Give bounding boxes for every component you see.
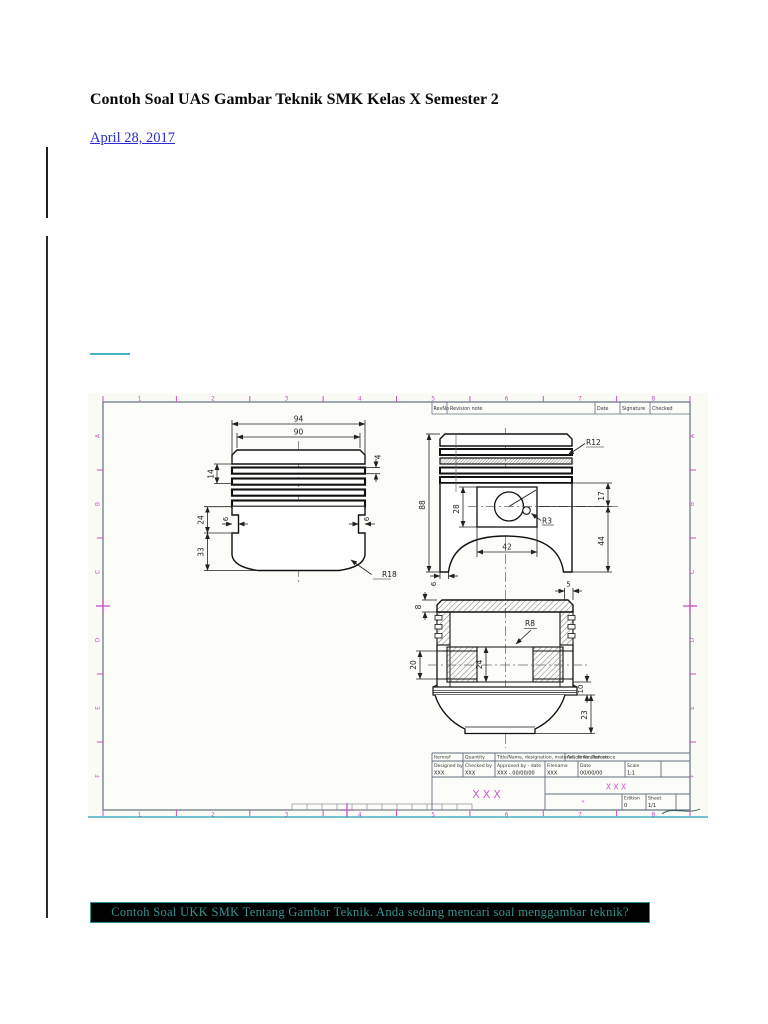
svg-text:8: 8 — [651, 812, 655, 819]
dim-6-leg: 6 — [430, 581, 438, 586]
svg-text:5: 5 — [431, 396, 435, 403]
svg-text:B: B — [689, 502, 696, 506]
svg-text:7: 7 — [578, 812, 582, 819]
dim-20: 20 — [409, 660, 418, 670]
tb-star: * — [582, 800, 585, 807]
svg-text:F: F — [689, 774, 696, 778]
front-view — [232, 441, 365, 583]
divider-line-short — [46, 147, 48, 218]
revision-checked-label: Checked — [652, 406, 673, 412]
tb-sheet-value: 1/1 — [648, 803, 656, 809]
dim-5: 5 — [566, 581, 570, 589]
tb-scale-value: 1:1 — [627, 771, 635, 777]
dim-r12: R12 — [586, 438, 601, 447]
tb-designed-value: XXX — [434, 771, 445, 777]
footer-link-bar[interactable]: Contoh Soal UKK SMK Tentang Gambar Tekni… — [90, 902, 650, 923]
tb-drawing-title-placeholder: XXX — [472, 788, 504, 801]
tb-approved-label: Approved by - date — [497, 763, 541, 769]
svg-text:1: 1 — [138, 812, 142, 819]
svg-text:5: 5 — [431, 812, 435, 819]
dim-r18: R18 — [382, 570, 397, 579]
revision-date-label: Date — [597, 406, 609, 412]
svg-text:7: 7 — [578, 396, 582, 403]
dim-42: 42 — [502, 543, 512, 552]
tb-article-placeholder: XXX — [606, 783, 628, 792]
revision-signature-label: Signature — [622, 406, 645, 412]
dim-6-right: 6 — [363, 516, 371, 521]
svg-text:1: 1 — [138, 396, 142, 403]
tb-date-value: 00/00/00 — [580, 771, 602, 777]
svg-text:F: F — [95, 774, 102, 778]
tb-filename-value: XXX — [547, 771, 558, 777]
svg-text:4: 4 — [358, 396, 362, 403]
svg-text:2: 2 — [211, 812, 215, 819]
dim-8: 8 — [414, 604, 423, 609]
tb-checked-label: Checked by — [465, 763, 492, 769]
tb-designed-label: Designed by — [434, 763, 463, 769]
tb-header-quantity: Quantity — [465, 755, 485, 761]
dim-88: 88 — [418, 500, 427, 510]
dim-23: 23 — [580, 710, 589, 720]
teal-rule-short — [90, 353, 130, 355]
tb-date-label: Date — [580, 763, 591, 769]
tb-filename-label: Filename — [547, 763, 568, 769]
tb-sheet-label: Sheet — [648, 796, 661, 802]
svg-text:E: E — [95, 706, 102, 710]
svg-text:2: 2 — [211, 396, 215, 403]
svg-text:6: 6 — [505, 396, 509, 403]
date-link[interactable]: April 28, 2017 — [90, 130, 175, 147]
svg-text:3: 3 — [284, 812, 288, 819]
svg-text:4: 4 — [358, 812, 362, 819]
dim-r8: R8 — [525, 619, 535, 628]
tb-checked-value: XXX — [465, 771, 476, 777]
technical-drawing: 1 2 3 4 5 6 7 8 1 2 3 4 5 6 7 8 A B C D … — [88, 393, 708, 821]
dim-6-left: 6 — [222, 516, 230, 521]
dim-24: 24 — [475, 660, 484, 670]
tb-approved-value: XXX - 00/00/00 — [497, 771, 535, 777]
tb-scale-label: Scale — [627, 763, 640, 769]
dim-94: 94 — [294, 415, 304, 424]
dim-90: 90 — [294, 428, 304, 437]
dim-10: 10 — [577, 685, 585, 694]
piston-drawing-svg: 1 2 3 4 5 6 7 8 1 2 3 4 5 6 7 8 A B C D … — [88, 393, 708, 821]
svg-text:C: C — [95, 570, 102, 574]
dim-33: 33 — [197, 547, 206, 557]
page-title: Contoh Soal UAS Gambar Teknik SMK Kelas … — [90, 91, 499, 109]
tb-edition-value: 0 — [624, 803, 627, 809]
svg-text:E: E — [689, 706, 696, 710]
svg-text:D: D — [689, 637, 696, 642]
svg-text:D: D — [95, 637, 102, 642]
svg-text:B: B — [95, 502, 102, 506]
dim-17: 17 — [597, 491, 606, 501]
dim-24: 24 — [197, 515, 206, 525]
dim-44: 44 — [597, 536, 606, 546]
tb-header-itemref: Itemref — [434, 755, 451, 761]
dim-14: 14 — [207, 469, 216, 479]
dim-r3: R3 — [542, 517, 552, 526]
revision-note-label: Revision note — [450, 406, 482, 412]
svg-text:3: 3 — [284, 396, 288, 403]
revision-rev-label: RevNo — [434, 406, 449, 412]
dim-4: 4 — [374, 454, 383, 459]
divider-line-long — [46, 236, 48, 918]
tb-header-article: Article No./Reference — [567, 755, 616, 761]
tb-edition-label: Edition — [624, 796, 640, 802]
svg-text:6: 6 — [505, 812, 509, 819]
svg-text:C: C — [689, 570, 696, 574]
svg-text:8: 8 — [651, 396, 655, 403]
dim-28: 28 — [452, 504, 461, 514]
